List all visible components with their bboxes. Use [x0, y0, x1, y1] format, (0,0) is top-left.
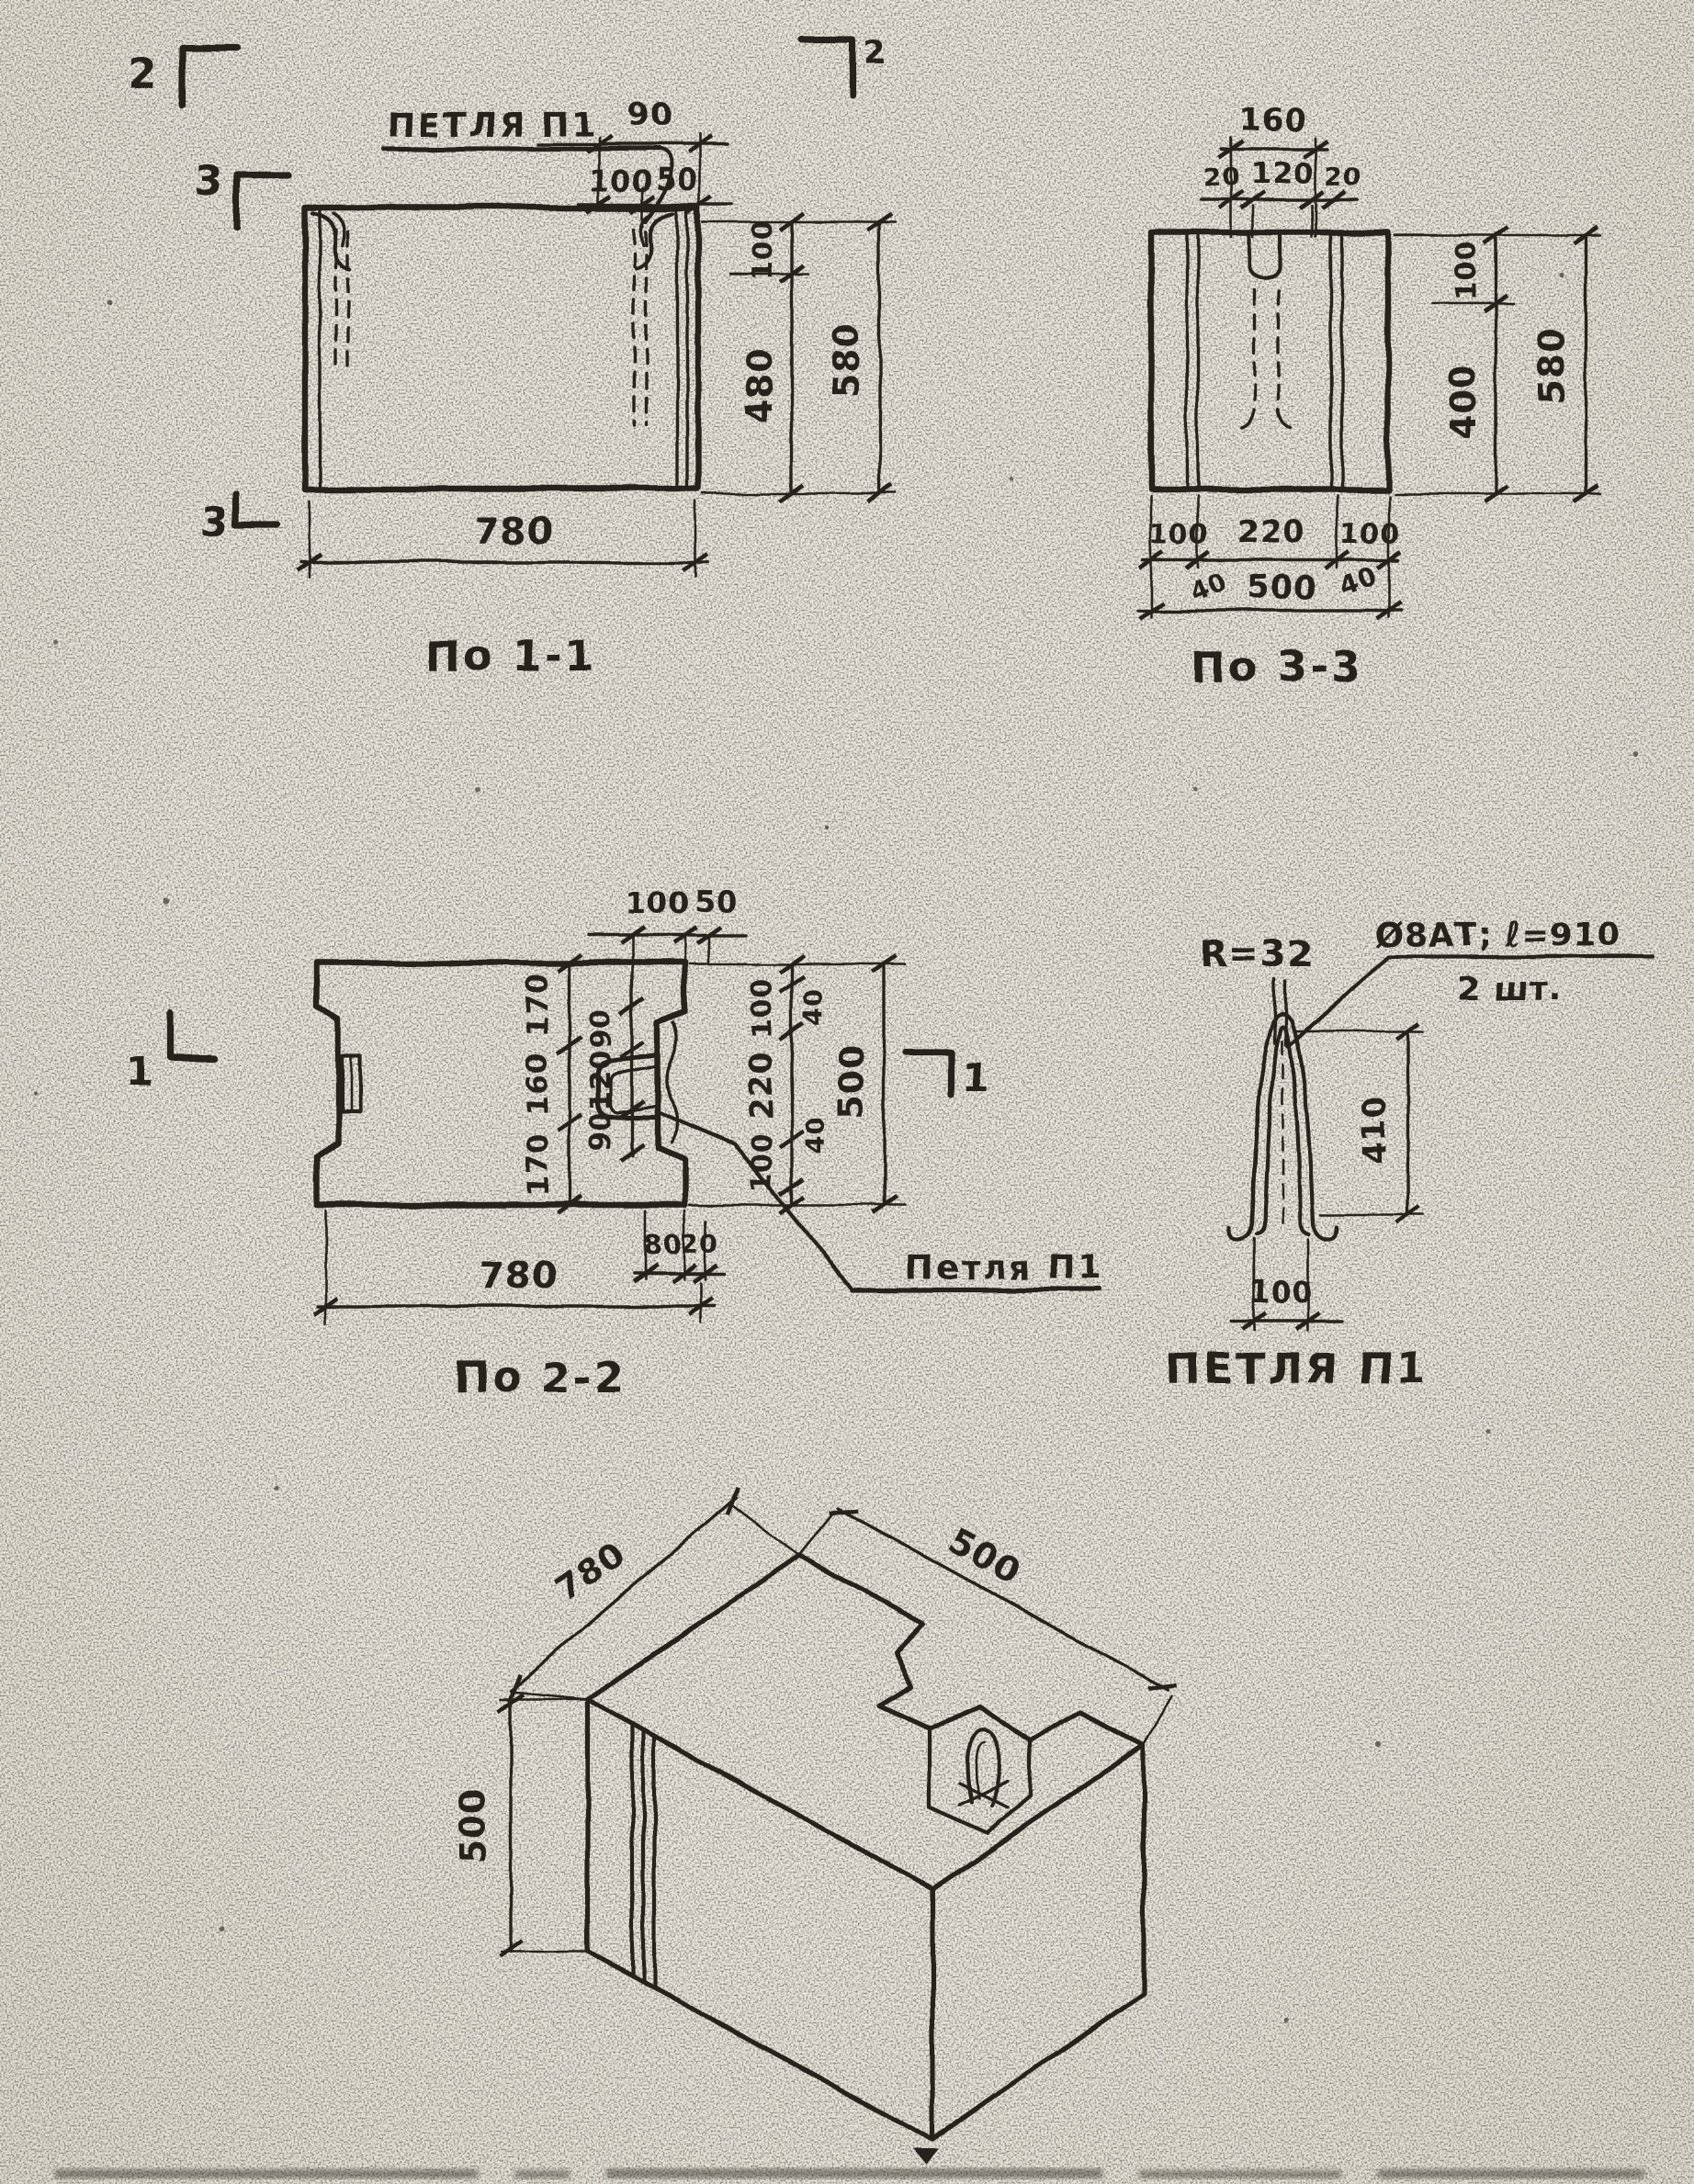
drawing-canvas: 2 2 3 3 ПЕТЛЯ П1	[0, 0, 1694, 2184]
scanned-drawing-page: 2 2 3 3 ПЕТЛЯ П1	[0, 0, 1694, 2184]
paper-grain-overlay	[0, 0, 1694, 2184]
